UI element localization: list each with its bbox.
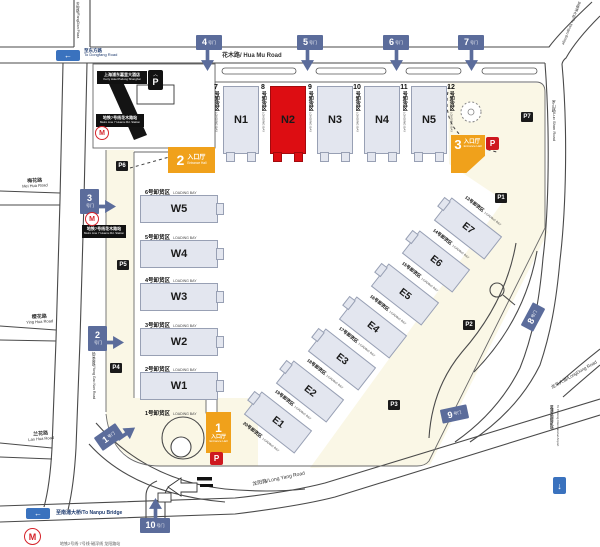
hotel-parking-icon: ︿ P — [148, 70, 163, 90]
hall-w3: W3 — [140, 283, 218, 311]
hall-w2: W2 — [140, 328, 218, 356]
tree-circle — [461, 102, 481, 122]
expo-site-map: N1 N2 N3 N4 N5 7 号卸货区 LOADING BAY 8 号卸货区… — [0, 0, 600, 547]
loading-bay-10: 10 号卸货区 LOADING BAY — [351, 84, 363, 162]
gate-7: 7号门 — [458, 35, 484, 50]
loading-bay-1: 1号卸货区LOADING BAY — [145, 402, 197, 420]
loading-bay-2: 2号卸货区LOADING BAY — [145, 358, 197, 376]
parking-p5-badge: P5 — [117, 260, 129, 270]
parking-p2-badge: P2 — [463, 320, 475, 330]
kerry-hotel-label: 上海浦东嘉里大酒店 Kerry Hotel Pudong Shanghai — [97, 71, 147, 84]
to-pudong-airport-label: 至浦东国际机场 To Pudong International Airport — [550, 405, 559, 446]
to-pudong-airport-arrow-icon: ↓ — [553, 477, 566, 494]
road-label-huamu: 花木路/ Hua Mu Road — [222, 53, 282, 60]
road-label-luoshan: 罗山路/Luo Shan Road — [551, 100, 556, 141]
loading-bay-3: 3号卸货区LOADING BAY — [145, 314, 197, 332]
hall-n1: N1 — [223, 86, 259, 154]
to-dongfang-arrow-icon: ← — [56, 50, 80, 61]
parking-p4-badge: P4 — [110, 363, 122, 373]
parking-p3-badge: P3 — [388, 400, 400, 410]
to-nanpu-label: 至南浦大桥/To Nanpu Bridge — [56, 510, 122, 516]
map-base-layer — [0, 0, 600, 547]
gate-4: 4号门 — [196, 35, 222, 50]
gate-5: 5号门 — [297, 35, 323, 50]
road-label-yanggao: 杨高南路/Yang Gao Nan Road — [92, 352, 96, 399]
gate-6: 6号门 — [383, 35, 409, 50]
gate-2: 2号门 — [88, 326, 107, 351]
metro-logo-icon: M — [95, 126, 109, 140]
metro-line7-west-label: 地铁7号线花木路站 Metro Line 7 Huamu Rd. Station — [82, 225, 126, 238]
hall-w1: W1 — [140, 372, 218, 400]
metro-logo-icon: M — [85, 212, 99, 226]
loading-bay-6: 6号卸货区LOADING BAY — [145, 181, 197, 199]
parking-p1-badge: P1 — [495, 193, 507, 203]
gate-3: 3号门 — [80, 189, 99, 214]
parking-p6-badge: P6 — [116, 161, 128, 171]
parking-p7-badge: P7 — [521, 112, 533, 122]
hall-n5: N5 — [411, 86, 447, 154]
metro-line7-north-label: 地铁7号线花木路站 Metro Line 7 Huamu Rd. Station — [96, 114, 144, 127]
hall-n4: N4 — [364, 86, 400, 154]
gate-10: 10号门 — [140, 518, 170, 533]
metro-logo-icon: M — [24, 528, 41, 545]
entrance-hall-1: 1 入口厅 Entrance Hall — [206, 412, 231, 453]
road-label-fangdian: 芳甸路/FangDian Plaza — [76, 2, 80, 38]
longyang-station-caption: 地铁2号线·7号线·磁浮线 龙阳路站 — [60, 542, 120, 547]
loading-bay-5: 5号卸货区LOADING BAY — [145, 226, 197, 244]
hall-n2-highlighted: N2 — [270, 86, 306, 154]
loading-bay-11: 11 号卸货区 LOADING BAY — [398, 84, 410, 162]
loading-bay-9: 9 号卸货区 LOADING BAY — [304, 84, 316, 162]
road-label-yinghua: 樱花路 Ying Hua Road — [26, 313, 54, 325]
to-dongfang-label: 至东方路 To Dongfang Road — [84, 48, 117, 58]
median-strips — [222, 68, 537, 74]
parking-red-badge-entrance3: P — [486, 137, 499, 150]
hall-w4: W4 — [140, 240, 218, 268]
road-label-lanhua: 兰花路 Lan Hua Road — [28, 430, 55, 443]
to-nanpu-arrow-icon: ← — [26, 508, 50, 519]
loading-bay-4: 4号卸货区LOADING BAY — [145, 269, 197, 287]
entrance-hall-2: 2 入口厅 Entrance Hall — [168, 147, 215, 173]
loading-bay-8: 8 号卸货区 LOADING BAY — [257, 84, 269, 162]
hall-n3: N3 — [317, 86, 353, 154]
road-label-meihua: 梅花路 Mei Hua Road — [22, 177, 48, 189]
parking-red-badge-entrance1: P — [210, 452, 223, 465]
hall-w5: W5 — [140, 195, 218, 223]
